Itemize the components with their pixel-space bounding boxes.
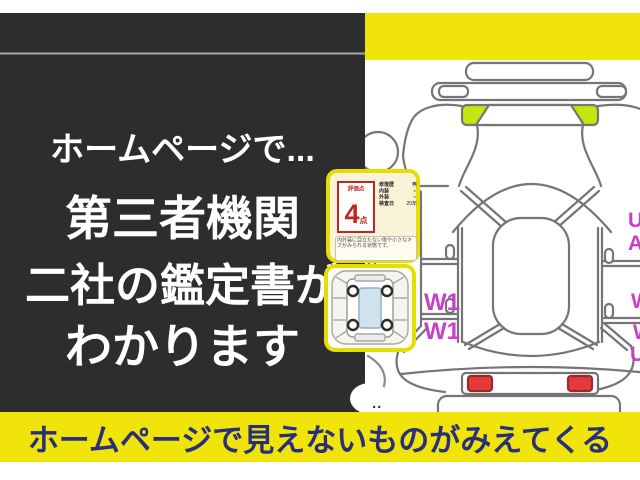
grade-score-unit: 点 <box>360 216 368 225</box>
left-mirror <box>365 132 398 172</box>
damage-code-u: U <box>628 210 640 231</box>
bottom-banner-text: ホームページで見えないものがみえてくる <box>28 415 612 460</box>
headline-line-4: わかります <box>0 308 365 377</box>
damage-code-w1-upper: W1 <box>424 291 460 315</box>
roof <box>493 218 569 334</box>
certificate-fields: 修復歴無 内装★ 外装★ 検査日20年 <box>379 182 417 208</box>
field-value: 20年 <box>406 201 417 207</box>
taillight-left <box>468 376 492 391</box>
damage-code-w-upper: W <box>631 291 640 312</box>
top-yellow-strip <box>365 13 640 60</box>
certificate-note-box: 内外装に目立たない傷や小さなキズがみられる状態です。 <box>335 236 417 261</box>
wheel <box>348 320 358 330</box>
connector-bubble <box>350 383 390 414</box>
front-roofrail-bar <box>466 63 593 80</box>
grade-certificate-card: 評価点 4点 修復歴無 内装★ 外装★ 検査日20年 内外装に目立たない傷や小さ… <box>326 169 420 263</box>
door-handle <box>605 304 613 318</box>
damage-code-a: A <box>628 233 640 254</box>
damage-code-w1-lower: W1 <box>424 320 460 344</box>
wheel <box>382 320 392 330</box>
wheel <box>382 286 392 296</box>
connector-dots: .. <box>372 395 382 412</box>
taillight-right <box>568 376 592 391</box>
field-label: 検査日 <box>379 201 394 207</box>
promo-image: ホームページで... 第三者機関 二社の鑑定書が わかります <box>0 0 640 480</box>
frame-diagram-card <box>324 264 416 352</box>
wheel <box>348 286 358 296</box>
frame-diagram <box>328 268 412 348</box>
rear-bumper <box>438 396 620 412</box>
grade-score-value: 4 <box>344 199 359 229</box>
damage-code-u-lower: U <box>630 344 640 365</box>
headline-line-1: ホームページで... <box>0 122 365 171</box>
headline-line-2: 第三者機関 <box>0 180 365 249</box>
bottom-banner: ホームページで見えないものがみえてくる <box>0 412 640 462</box>
grade-score-label: 評価点 <box>347 184 366 192</box>
damage-code-w-lower: W <box>633 322 640 343</box>
door-handle <box>605 249 613 263</box>
grade-score-box: 評価点 4点 <box>337 181 375 233</box>
divider-line <box>0 52 365 55</box>
headline-line-3: 二社の鑑定書が <box>0 249 365 314</box>
door-handle <box>446 245 454 259</box>
certificate-note-text: 内外装に目立たない傷や小さなキズがみられる状態です。 <box>336 237 414 249</box>
